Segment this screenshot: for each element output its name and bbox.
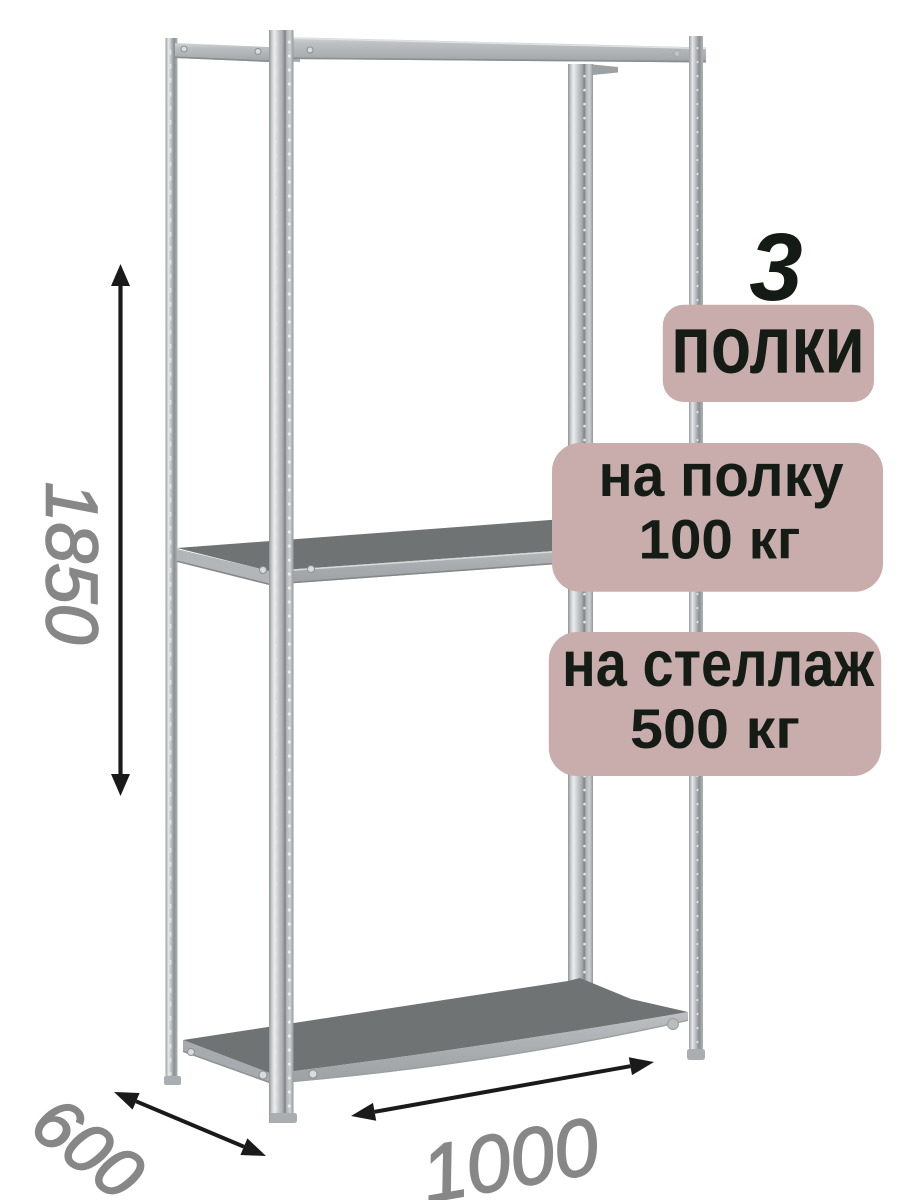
svg-text:на стеллаж: на стеллаж — [562, 627, 875, 700]
svg-text:1850: 1850 — [31, 482, 112, 644]
svg-text:полки: полки — [671, 300, 865, 391]
svg-text:100 кг: 100 кг — [639, 508, 801, 571]
svg-text:на полку: на полку — [599, 442, 845, 509]
svg-text:500 кг: 500 кг — [630, 697, 800, 760]
